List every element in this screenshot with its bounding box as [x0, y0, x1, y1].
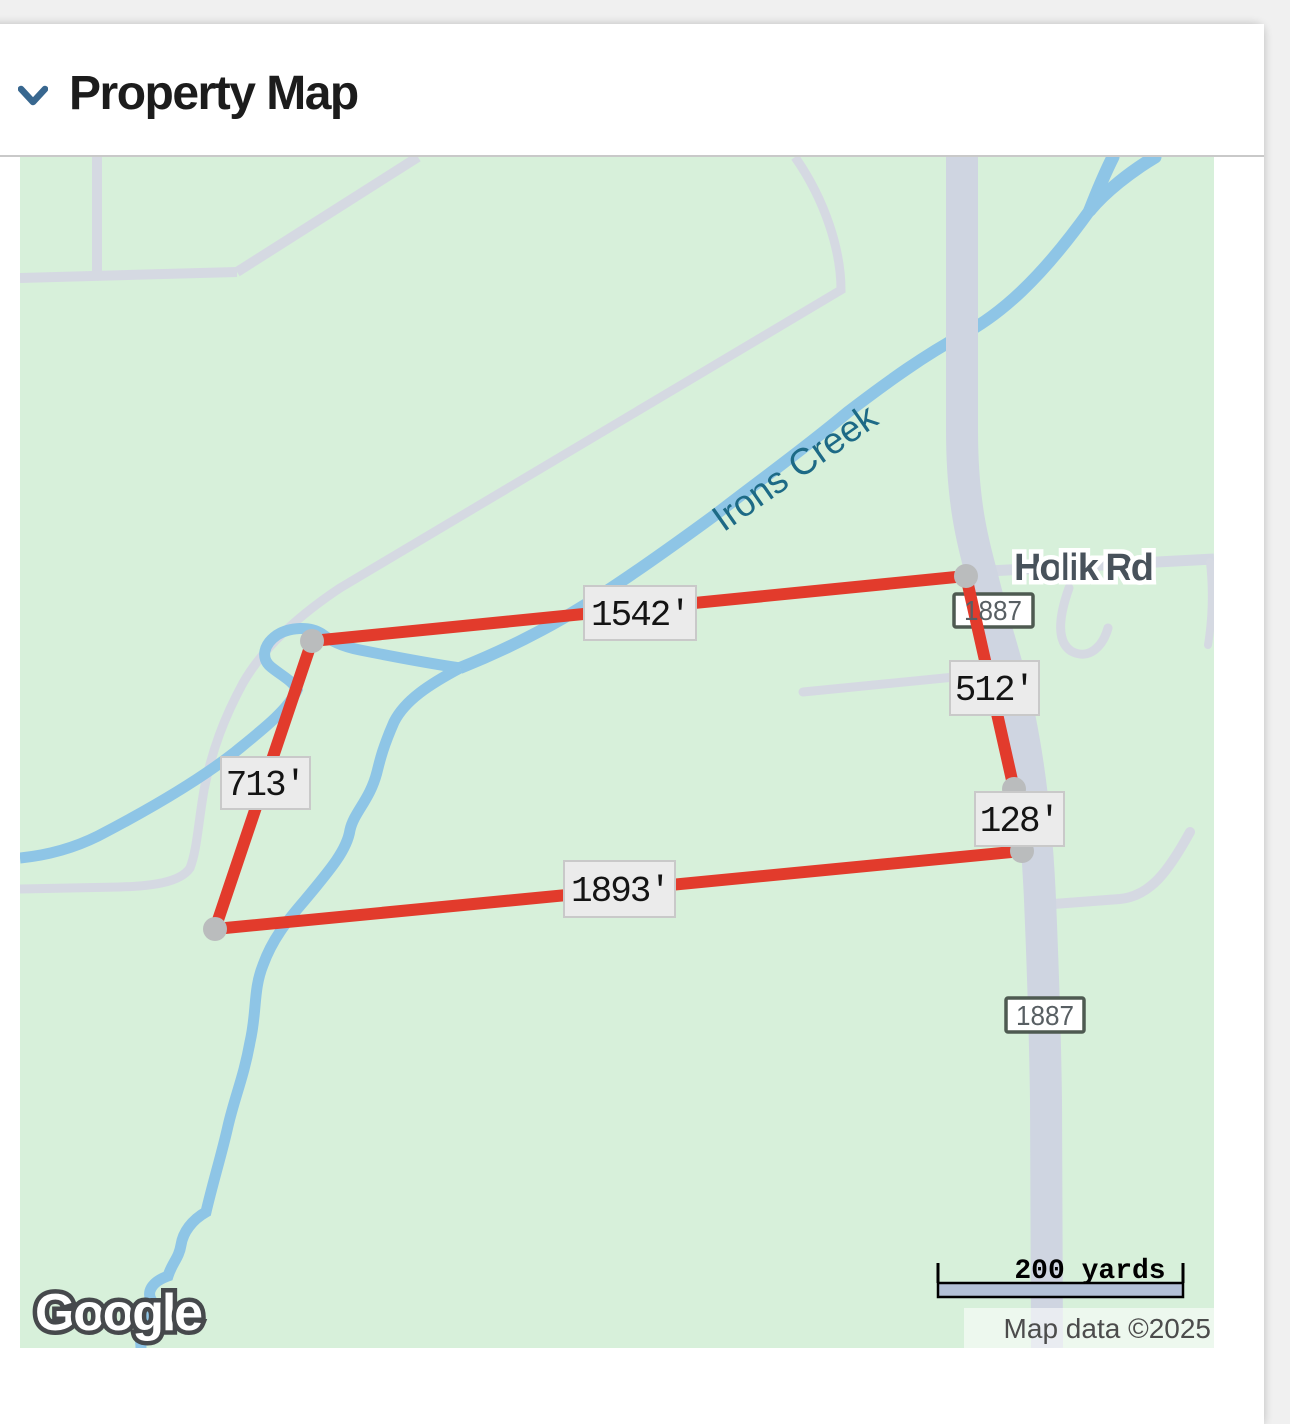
- svg-text:713': 713': [226, 765, 304, 806]
- svg-text:Map data ©2025: Map data ©2025: [1004, 1313, 1211, 1344]
- svg-text:512': 512': [955, 670, 1033, 711]
- svg-text:Holik Rd: Holik Rd: [1014, 547, 1154, 589]
- svg-text:1887: 1887: [964, 595, 1022, 626]
- svg-text:Google: Google: [35, 1284, 203, 1342]
- svg-text:128': 128': [980, 801, 1058, 842]
- svg-text:200 yards: 200 yards: [1014, 1256, 1165, 1287]
- svg-text:1542': 1542': [591, 595, 689, 636]
- svg-text:1887: 1887: [1016, 1000, 1074, 1031]
- svg-text:1893': 1893': [571, 871, 669, 912]
